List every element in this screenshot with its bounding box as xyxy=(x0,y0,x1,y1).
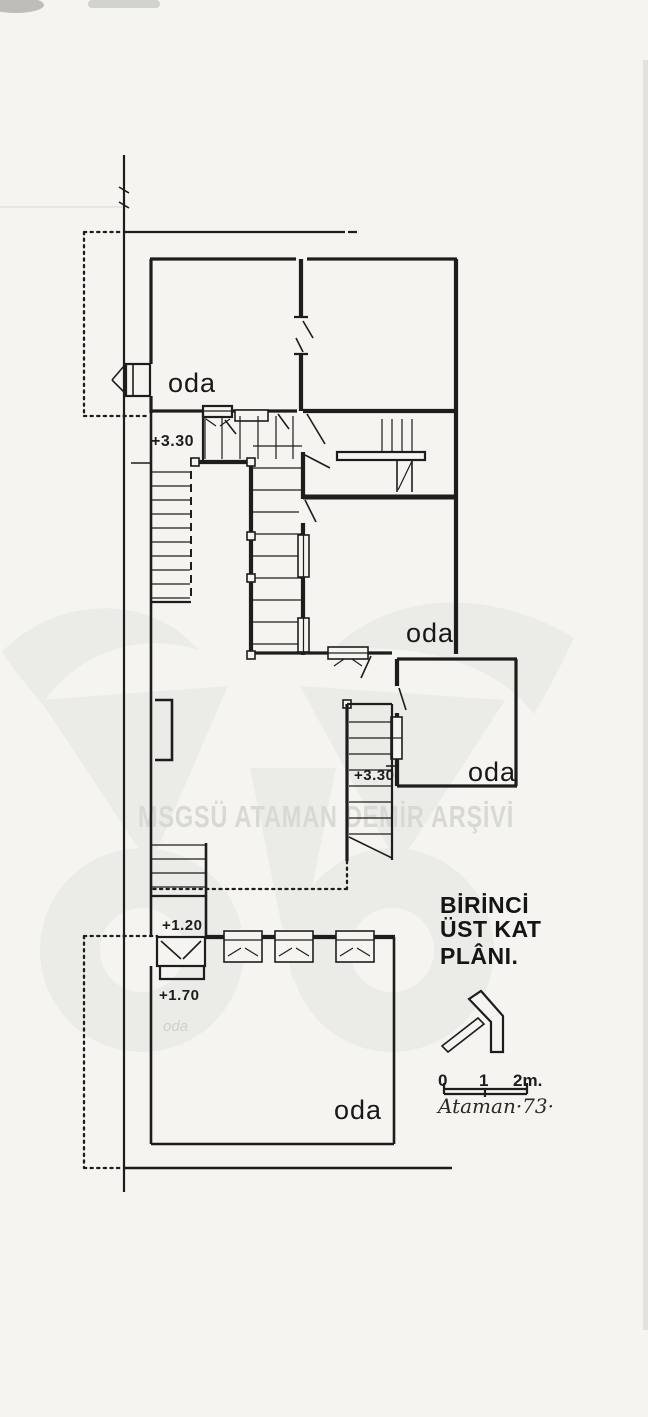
room-label-bottom: oda xyxy=(334,1095,382,1125)
scale-tick-0: 0 xyxy=(438,1071,447,1090)
elevation-mark-upper: +3.30 xyxy=(151,433,194,450)
architect-signature: Ataman·73· xyxy=(436,1094,554,1118)
plan-title-line-1: BİRİNCİ xyxy=(440,892,529,918)
stair-rail xyxy=(337,452,425,460)
archive-watermark-text: MSGSÜ ATAMAN DEMİR ARŞİVİ xyxy=(138,799,514,834)
plan-title-line-3: PLÂNI. xyxy=(440,942,518,969)
room-label-middle: oda xyxy=(406,618,454,648)
room-label-right: oda xyxy=(468,757,516,787)
floor-plan-scan-page: MSGSÜ ATAMAN DEMİR ARŞİVİ xyxy=(0,0,648,1417)
window xyxy=(275,929,313,962)
pencil-ghost-note: oda xyxy=(163,1018,188,1035)
plan-title-line-2: ÜST KAT xyxy=(440,916,541,942)
window xyxy=(224,929,262,962)
entry-door xyxy=(157,937,205,966)
elevation-mark-landing: +1.20 xyxy=(162,917,202,934)
room-label-top-left: oda xyxy=(168,368,216,398)
floor-plan-drawing: MSGSÜ ATAMAN DEMİR ARŞİVİ xyxy=(0,0,648,1417)
elevation-mark-entry: +1.70 xyxy=(159,987,199,1004)
window xyxy=(336,929,374,962)
scale-tick-1: 1 xyxy=(479,1071,488,1090)
elevation-mark-right: +3.30 xyxy=(354,767,394,784)
